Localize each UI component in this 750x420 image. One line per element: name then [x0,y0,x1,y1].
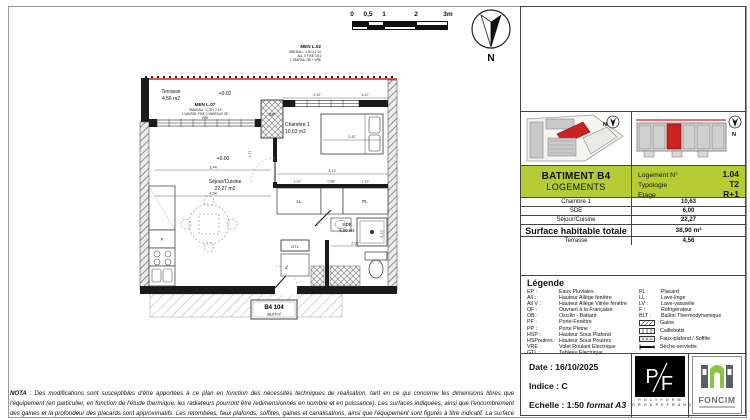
field-row: Typologie T2 [638,179,739,189]
gtl-label: GTL [291,244,300,249]
wall [149,119,157,127]
polyform-logo: P F P O L Y F O R M G R O U P E F R A N … [632,354,689,417]
legend-symbol-label: Faux-plafond / Soffite [660,336,710,342]
ll-label: LL [296,199,302,204]
wall [359,100,388,107]
dining-table [181,196,237,252]
legend-symbol-label: Gaine [660,320,674,326]
areas-table: Chambre 1 10,63 SDE 6,00 Séjour/Cuisine … [521,197,745,245]
scale-segment [368,26,384,31]
men-l07-name: MEN L.07 [195,102,216,107]
field-value: 1.04 [722,169,739,179]
legend: Légende EP :Eaux Pluviales All :Hauteur … [521,275,745,353]
scale-tick-label: 0,5 [363,11,372,18]
scale-segment [384,26,416,31]
floor-plan: Terrasse 4,56 m2 +0.02 MEN L.07 TABLEAU … [125,36,425,326]
ep-label: EP [269,112,275,117]
foncim-building-icon [696,357,738,391]
legend-title: Légende [527,278,564,288]
logements-label: LOGEMENTS [546,182,605,192]
foncim-logo: FONCIM [689,354,745,417]
room-name: Séjour/Cuisine [521,216,632,224]
terrasse-area: 4,56 m2 [162,96,180,102]
foncim-name: FONCIM [693,396,741,405]
legend-symbol-entry: Gaine [639,319,743,327]
field-label: Logement N° [638,172,678,179]
table-row: Séjour/Cuisine 22,27 [521,215,745,224]
mini-north-label: N [732,132,736,138]
unit-info-cell: Logement N° 1.04 Typologie T2 Etage R+1 [632,166,745,197]
nota-bold: NOTA [10,390,27,397]
sejour-area: 22,27 m2 [215,186,236,192]
building-name-cell: BATIMENT B4 LOGEMENTS [521,166,632,197]
field-label: Typologie [638,182,667,189]
entry-door-opening [275,285,297,295]
scale-bar: 0 0,5 1 2 3m [347,11,459,37]
dim: 3,44 [209,166,216,170]
nota-text: NOTA : Des modifications sont susceptibl… [10,389,514,419]
echelle-label: Echelle : 1:50 format A3 [529,400,631,410]
chambre-area: 10,63 m2 [285,129,306,135]
floor-key-plan: N [632,112,745,165]
pl-hall-label: PL [284,264,289,270]
polyform-sub: G R O U P E F R A N C [632,403,688,408]
scale-tick-label: 0 [350,11,354,18]
north-label: N [487,53,494,64]
drawing-info-cell: Date : 16/10/2025 Indice : C Echelle : 1… [521,354,632,417]
scale-segment [416,26,448,31]
partition-wall [277,184,388,188]
room-name: Chambre 1 [521,198,632,206]
room-name: Terrasse [521,237,632,245]
sejour-label: Séjour/Cuisine [209,179,242,185]
field-row: Logement N° 1.04 [638,169,739,179]
chambre-label: Chambre 1 [285,122,310,128]
caillebotis-symbol-icon [639,328,655,334]
partition-wall [325,240,329,286]
terrasse-label: Terrasse [161,89,180,95]
north-arrow-icon: N [468,4,514,64]
polyform-f-letter: F [661,373,673,395]
legend-left-column: EP :Eaux Pluviales All :Hauteur Allège f… [527,289,635,356]
legend-abbr: BLT : [639,313,661,319]
men-l02-name: MEN L.02 [300,44,321,49]
wall [141,78,149,122]
gaine-hatch [330,266,360,286]
faux-plafond-symbol-icon [639,336,655,342]
dim: 2,87 [348,135,355,139]
men-l02-line3: 1 VANTAIL OB + VRE [290,58,321,62]
echelle-format: format A3 [586,400,626,410]
level-top: +0.02 [219,91,232,97]
gaine-hatch [311,266,324,286]
polyform-mark: P F [635,356,685,397]
legend-symbol-entry: Sèche-serviette [639,343,743,351]
dim: 1,71 [248,150,252,157]
pl-closet-label: PL [362,199,368,204]
room-area: 4,56 [632,237,745,245]
partition-wall [273,182,277,188]
building-banner: BATIMENT B4 LOGEMENTS Logement N° 1.04 T… [521,165,745,197]
legend-desc: Ballon Thermodynamique [661,313,721,319]
table-row: Chambre 1 10,63 [521,197,745,206]
table-row: SDE 6,00 [521,206,745,215]
legend-right-column: PL :Placard LL :Lave-linge LV :Lave-vais… [639,289,743,351]
legend-symbol-label: Caillebotis [660,328,684,334]
kitchen-fittings [149,186,175,286]
room-area: 6,00 [632,207,745,215]
scale-tick-label: 1 [382,11,386,18]
foncim-box: FONCIM [692,356,742,414]
indice-label: Indice : C [529,381,631,391]
total-label: Surface habitable totale [521,225,632,236]
scale-tick-label: 2 [414,11,418,18]
wall [140,122,149,290]
scale-segment [352,26,368,31]
unit-tag: B4 104 38,67m² [251,300,297,319]
title-block: N N [520,6,746,416]
wall [388,80,397,290]
dim: 1,10 [294,180,301,184]
dim: 1,29 [362,180,369,184]
sde-area: 6,00 m2 [339,228,355,233]
dim: 3,47 [361,93,368,97]
date-label: Date : 16/10/2025 [529,362,631,372]
dim: 2,10 [380,230,384,237]
unit-area: 38,67m² [267,313,282,317]
scale-tick-label: 3m [443,11,452,18]
gaine-symbol-icon [639,320,655,326]
key-plans-row: N N [521,111,745,165]
room-name: SDE [521,207,632,215]
legend-symbol-entry: Caillebotis [639,327,743,335]
sde-label: SDE [342,222,351,227]
dim: 3,12 [328,169,335,173]
ep-duct [261,100,283,138]
table-row: Terrasse 4,56 [521,236,745,245]
wall [140,286,397,294]
site-key-plan: N [521,112,632,165]
unit-number: B4 104 [264,305,284,311]
seche-serviette-symbol-icon [639,344,655,350]
total-row: Surface habitable totale 38,90 m² [521,224,745,236]
plan-sheet: 0 0,5 1 2 3m N [0,0,750,420]
fridge-label: F [161,237,164,242]
echelle-value: Echelle : 1:50 [529,400,584,410]
foncim-tagline [699,406,735,408]
men-l07-line3: VRE [202,116,209,120]
dim: 0,88 [328,180,335,184]
dim: 2,57 [313,93,320,97]
legend-symbol-entry: Faux-plafond / Soffite [639,335,743,343]
title-block-footer: Date : 16/10/2025 Indice : C Echelle : 1… [521,353,745,417]
closet-niche [321,188,343,214]
room-area: 10,63 [632,198,745,206]
room-area: 22,27 [632,216,745,224]
dim: 4,54 [209,192,216,196]
batiment-label: BATIMENT B4 [542,171,611,182]
mini-north-label: N [603,122,607,128]
level-main: +0.00 [217,156,230,162]
total-value: 38,90 m² [632,225,745,236]
dim: 2,02 [351,242,358,246]
landing-hatch [150,294,342,317]
legend-symbol-label: Sèche-serviette [660,344,697,350]
field-value: T2 [729,179,739,189]
wall [283,100,295,107]
highlighted-unit [667,124,681,149]
nota-body: : Des modifications sont susceptibles d'… [10,390,514,420]
bed [321,114,383,154]
